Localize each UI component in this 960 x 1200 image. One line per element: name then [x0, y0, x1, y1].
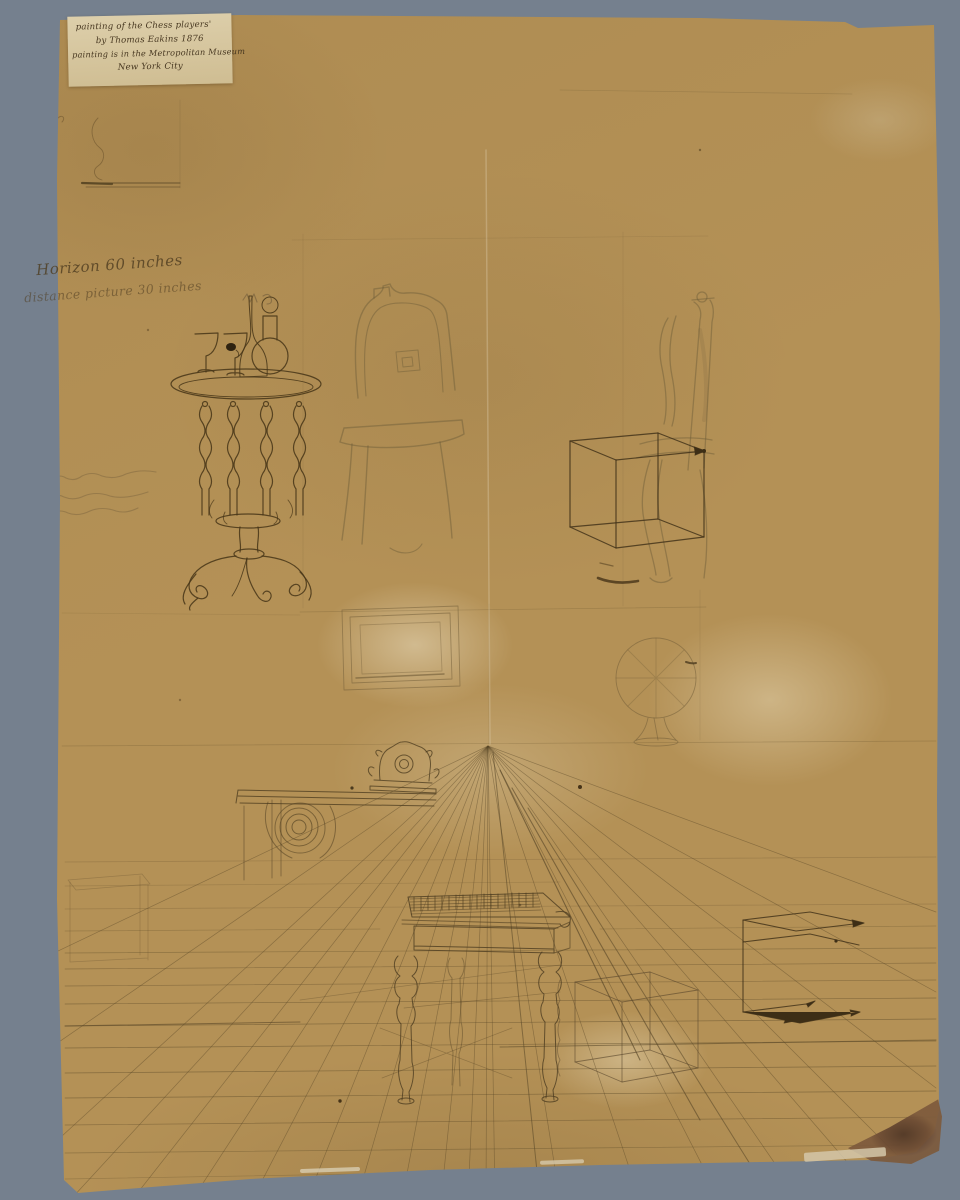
ink-box-sketch [743, 912, 864, 1023]
scale-bar-sketch [58, 116, 180, 187]
chess-table-sketch [300, 893, 570, 1104]
pasted-label: painting of the Chess players' by Thomas… [67, 13, 232, 86]
mantel-clock-sketch [236, 742, 439, 880]
faint-left-box [68, 874, 150, 962]
picture-frame-sketch [342, 606, 460, 690]
perspective-cube-ink [570, 433, 706, 548]
side-table-sketch [171, 296, 321, 610]
perspective-drawing [0, 0, 960, 1200]
side-chair-sketch [636, 292, 714, 583]
globe-sketch [616, 638, 696, 746]
ink-smudges [147, 149, 701, 1103]
construction-grid [62, 90, 936, 746]
pencil-box-sketch [558, 972, 699, 1082]
faint-inscription [46, 294, 272, 515]
armchair-sketch [340, 284, 464, 553]
vanishing-point-rays [56, 746, 936, 1200]
artwork-scan: painting of the Chess players' by Thomas… [0, 0, 960, 1200]
